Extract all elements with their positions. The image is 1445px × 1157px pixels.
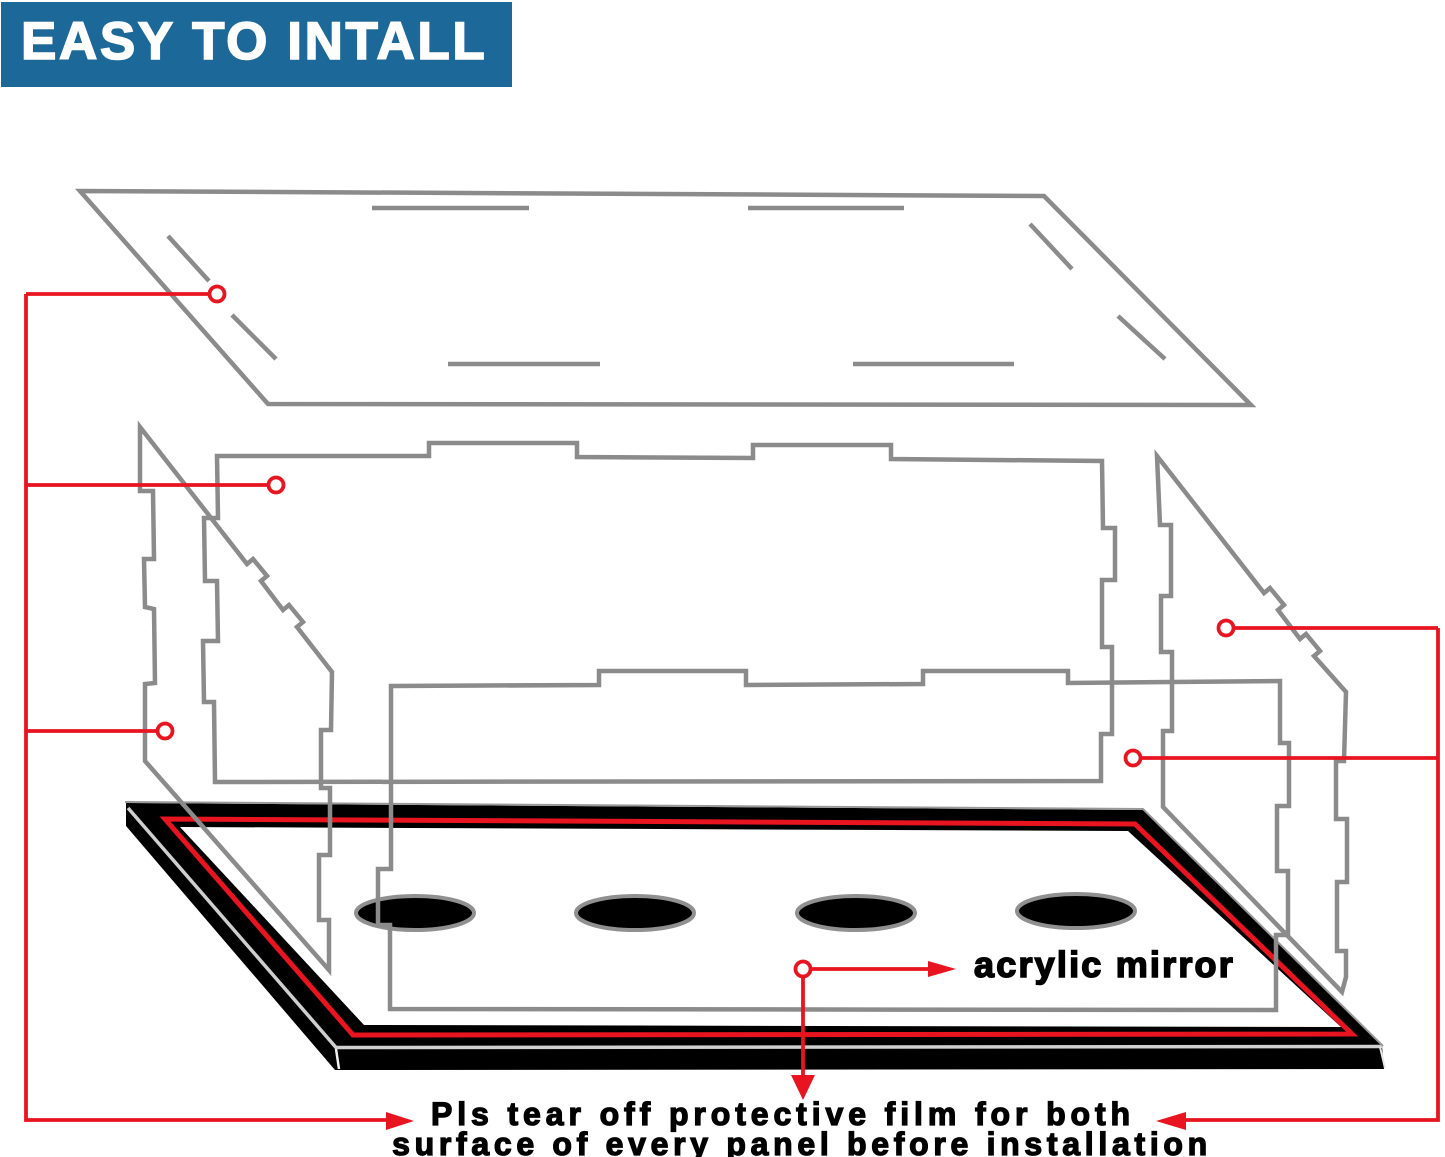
svg-text:acrylic mirror: acrylic mirror: [974, 944, 1235, 985]
svg-text:surface of every panel before: surface of every panel before installati…: [392, 1126, 1212, 1157]
svg-text:EASY TO INTALL: EASY TO INTALL: [21, 12, 487, 71]
